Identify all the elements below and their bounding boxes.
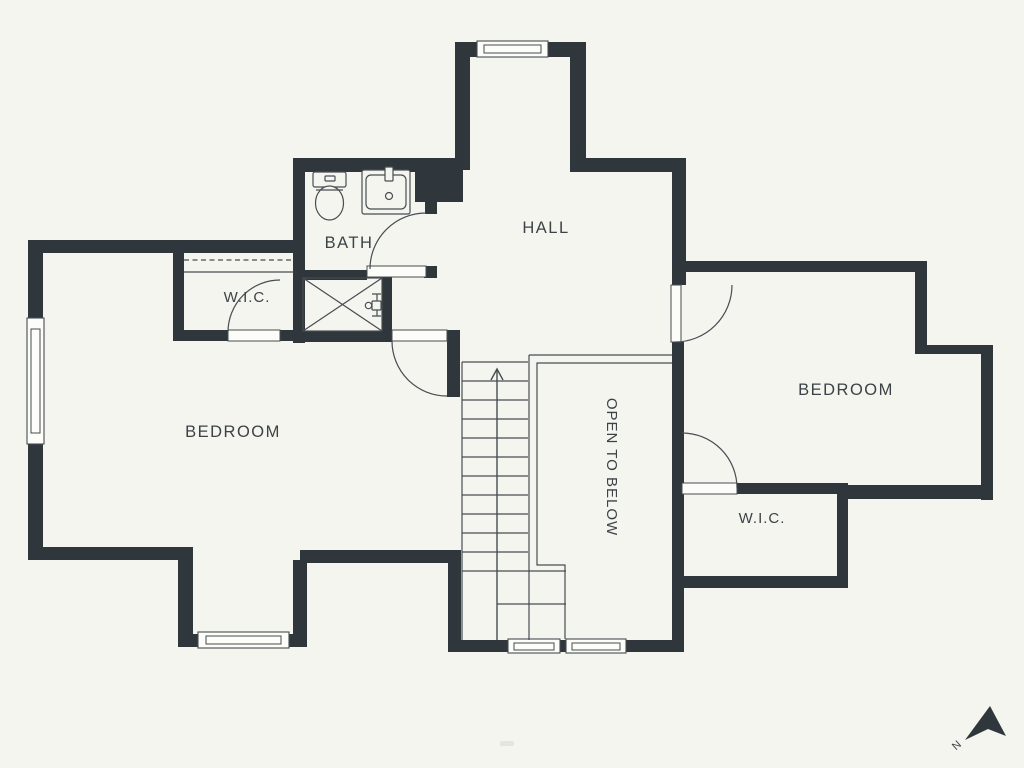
- wall-segment: [848, 485, 993, 499]
- wall-segment: [915, 261, 927, 353]
- wall-segment: [28, 547, 193, 560]
- room-label-wic-right: W.I.C.: [739, 510, 786, 527]
- room-label-bath: BATH: [325, 234, 374, 252]
- wall-segment: [415, 158, 463, 202]
- wall-segment: [837, 485, 848, 588]
- wall-segment: [672, 342, 684, 652]
- staircase: [462, 362, 566, 640]
- watermark-faint: [500, 741, 514, 746]
- stair-treads: [462, 362, 528, 552]
- wall-segment: [178, 547, 193, 647]
- north-label: N: [950, 739, 964, 753]
- toilet-icon: [313, 172, 346, 220]
- wall-segment: [455, 42, 470, 170]
- wall-segment: [570, 42, 586, 172]
- closet-rod: [184, 260, 294, 272]
- wall-segment: [173, 250, 184, 338]
- door-swing: [671, 285, 732, 342]
- wall-segment: [173, 330, 228, 341]
- wall-segment: [425, 158, 437, 214]
- window: [566, 639, 626, 653]
- wall-segment: [981, 345, 993, 500]
- door-swing: [682, 433, 737, 494]
- wall-segment: [293, 331, 392, 342]
- window: [477, 41, 548, 57]
- door-swing: [392, 330, 447, 396]
- walls: [28, 42, 993, 652]
- north-arrow-icon: N: [950, 706, 1006, 753]
- window: [27, 318, 44, 444]
- sink-icon: [362, 167, 410, 214]
- open-to-below-boundary: [529, 355, 672, 640]
- room-label-bedroom-right: BEDROOM: [798, 381, 894, 399]
- shower-icon: [303, 278, 382, 331]
- wall-segment: [448, 640, 682, 652]
- wall-segment: [293, 560, 307, 647]
- room-label-bedroom-left: BEDROOM: [185, 423, 281, 441]
- wall-segment: [570, 158, 686, 172]
- wall-segment: [672, 576, 848, 588]
- window: [198, 632, 289, 648]
- door-swing: [367, 213, 426, 277]
- wall-segment: [672, 483, 682, 494]
- wall-segment: [737, 483, 848, 494]
- room-label-hall: HALL: [522, 219, 569, 237]
- wall-segment: [300, 550, 460, 563]
- wall-segment: [672, 261, 927, 272]
- floor-plan-page: HALL BATH W.I.C. BEDROOM OPEN TO BELOW B…: [0, 0, 1024, 768]
- window: [508, 639, 560, 653]
- wall-segment: [280, 330, 305, 341]
- room-label-open-to-below: OPEN TO BELOW: [603, 398, 620, 536]
- wall-segment: [447, 330, 460, 397]
- wall-segment: [448, 550, 461, 652]
- floor-plan-drawing: HALL BATH W.I.C. BEDROOM OPEN TO BELOW B…: [0, 0, 1024, 768]
- room-label-wic-left: W.I.C.: [224, 289, 271, 306]
- wall-segment: [28, 240, 305, 253]
- stairs-up-arrow-icon: [491, 369, 503, 640]
